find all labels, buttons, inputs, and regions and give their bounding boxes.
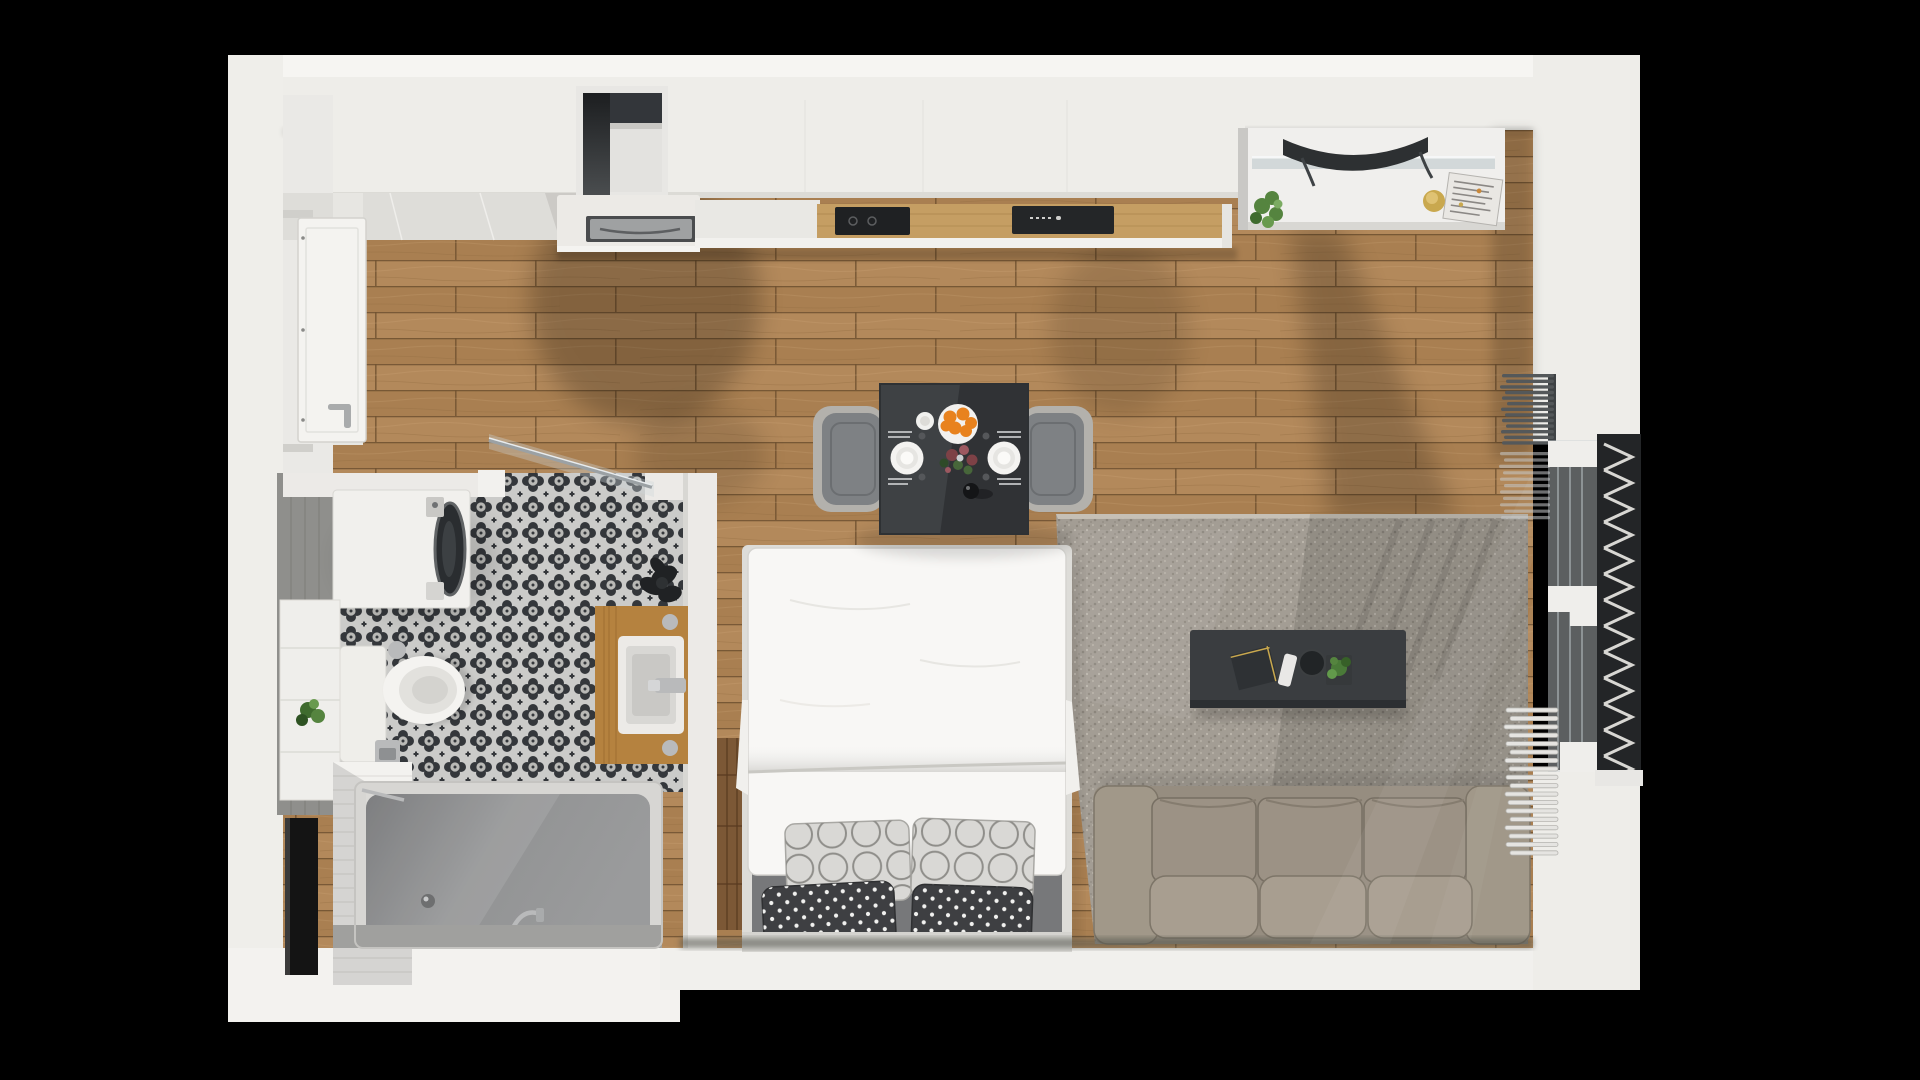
vanity-faucet-spout: [648, 680, 660, 691]
door-hinge: [301, 236, 305, 240]
niche-sill: [610, 123, 662, 192]
counter-white: [695, 200, 820, 238]
tub-drain-highlight: [424, 897, 429, 902]
sideboard-side: [1238, 128, 1248, 230]
bathroom: [277, 434, 717, 985]
coffee-table: [1190, 630, 1406, 708]
washing-machine: [333, 490, 470, 608]
counter-wood-section: [817, 204, 1232, 248]
dining-chair-right: [1021, 406, 1093, 512]
door-frame-top-block: [1548, 441, 1600, 467]
left-wall: [228, 55, 283, 1020]
lattice-cap: [1595, 770, 1643, 786]
bottom-wall-right: [660, 948, 1640, 990]
sleeping-area: [717, 545, 1080, 952]
napkin-ring: [919, 474, 926, 481]
bottom-skirting-shadow: [680, 938, 1533, 948]
storage-column: [280, 600, 340, 800]
tub-drain: [421, 894, 435, 908]
built-in-oven: [1012, 206, 1114, 234]
balcony-lattice: [1595, 434, 1643, 786]
door-hinge: [301, 328, 305, 332]
sideboard-front-edge: [1248, 222, 1505, 230]
niche-dark-side: [583, 93, 610, 195]
niche-dark-top: [610, 93, 662, 123]
window-niche: [576, 86, 668, 198]
washer-panel: [426, 582, 444, 600]
tub-faucet-base: [536, 908, 544, 922]
wine-bottle: [963, 483, 979, 499]
door-frame-top: [283, 210, 313, 218]
counter-white-lip: [695, 238, 820, 248]
shower-door-pivot: [478, 470, 505, 497]
dinner-plate-left: [891, 442, 924, 475]
candle-top: [1426, 192, 1438, 204]
wardrobe-wall: [333, 95, 1245, 198]
entry-door: [298, 218, 366, 442]
niche-sill-shade: [610, 123, 662, 129]
tp-roll: [379, 748, 396, 760]
napkin-ring: [983, 433, 990, 440]
coffee-table-edge: [1190, 700, 1406, 708]
sofa-back-cushion: [1150, 876, 1258, 938]
vanity-knob: [662, 740, 678, 756]
vanity-knob: [662, 614, 678, 630]
media-sideboard: [1238, 128, 1505, 230]
double-bed: [736, 545, 1080, 952]
bathroom-right-wall: [683, 473, 717, 948]
bottle-highlight: [966, 486, 970, 490]
napkin-ring: [983, 474, 990, 481]
top-wall-highlight: [228, 55, 1640, 77]
black-niche-edge: [285, 818, 290, 975]
napkin-ring: [919, 433, 926, 440]
counter-end-cap: [1222, 204, 1232, 248]
balcony-door: [1548, 440, 1600, 772]
toilet-lid-center: [412, 676, 448, 704]
coffee-table-group: [1190, 630, 1406, 718]
washer-knob: [432, 502, 438, 508]
washer-door-glass: [442, 521, 456, 577]
sofa-arm-left: [1094, 786, 1158, 944]
dining-chair-left: [813, 406, 885, 512]
coffee-table-plant: [1326, 655, 1352, 685]
lattice-bar: [1597, 434, 1641, 786]
door-hinge: [301, 418, 305, 422]
screenshot-stage: [0, 0, 1920, 1080]
kitchen-sink-module: [557, 195, 700, 252]
shadow-blob-right: [1050, 245, 1190, 415]
door-frame-bottom: [283, 444, 313, 452]
dinner-plate-right: [988, 442, 1021, 475]
bath-floor-strip: [333, 925, 662, 948]
sofa-seat-cushion: [1152, 798, 1256, 882]
magazine: [1443, 173, 1503, 226]
counter-wood-lip: [817, 238, 1230, 248]
espresso-cup: [920, 416, 930, 426]
bathtub: [355, 782, 662, 948]
floor-plan-render: [0, 0, 1920, 1080]
door-handle-lever: [344, 404, 351, 428]
door-frame-bottom-block: [1560, 742, 1598, 772]
cooktop: [835, 207, 910, 235]
sink-counter-lip: [557, 246, 700, 252]
flush-button: [388, 641, 406, 659]
